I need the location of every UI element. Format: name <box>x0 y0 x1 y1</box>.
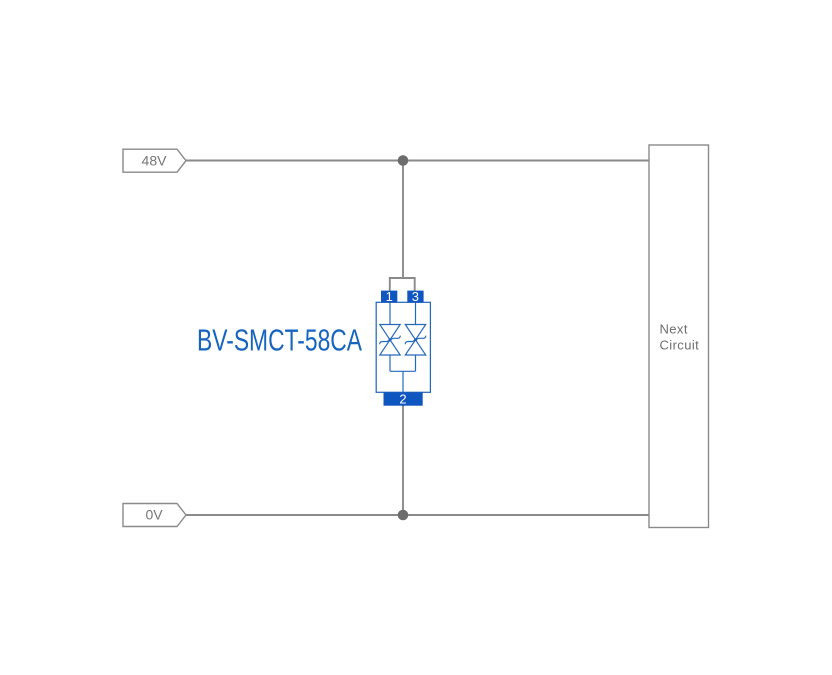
svg-text:Next: Next <box>660 322 688 337</box>
svg-text:3: 3 <box>412 289 419 304</box>
svg-text:48V: 48V <box>142 153 168 169</box>
svg-text:0V: 0V <box>145 507 163 523</box>
svg-text:2: 2 <box>399 392 406 407</box>
svg-text:1: 1 <box>386 289 393 304</box>
svg-text:Circuit: Circuit <box>660 338 700 353</box>
svg-text:BV-SMCT-58CA: BV-SMCT-58CA <box>197 323 362 358</box>
